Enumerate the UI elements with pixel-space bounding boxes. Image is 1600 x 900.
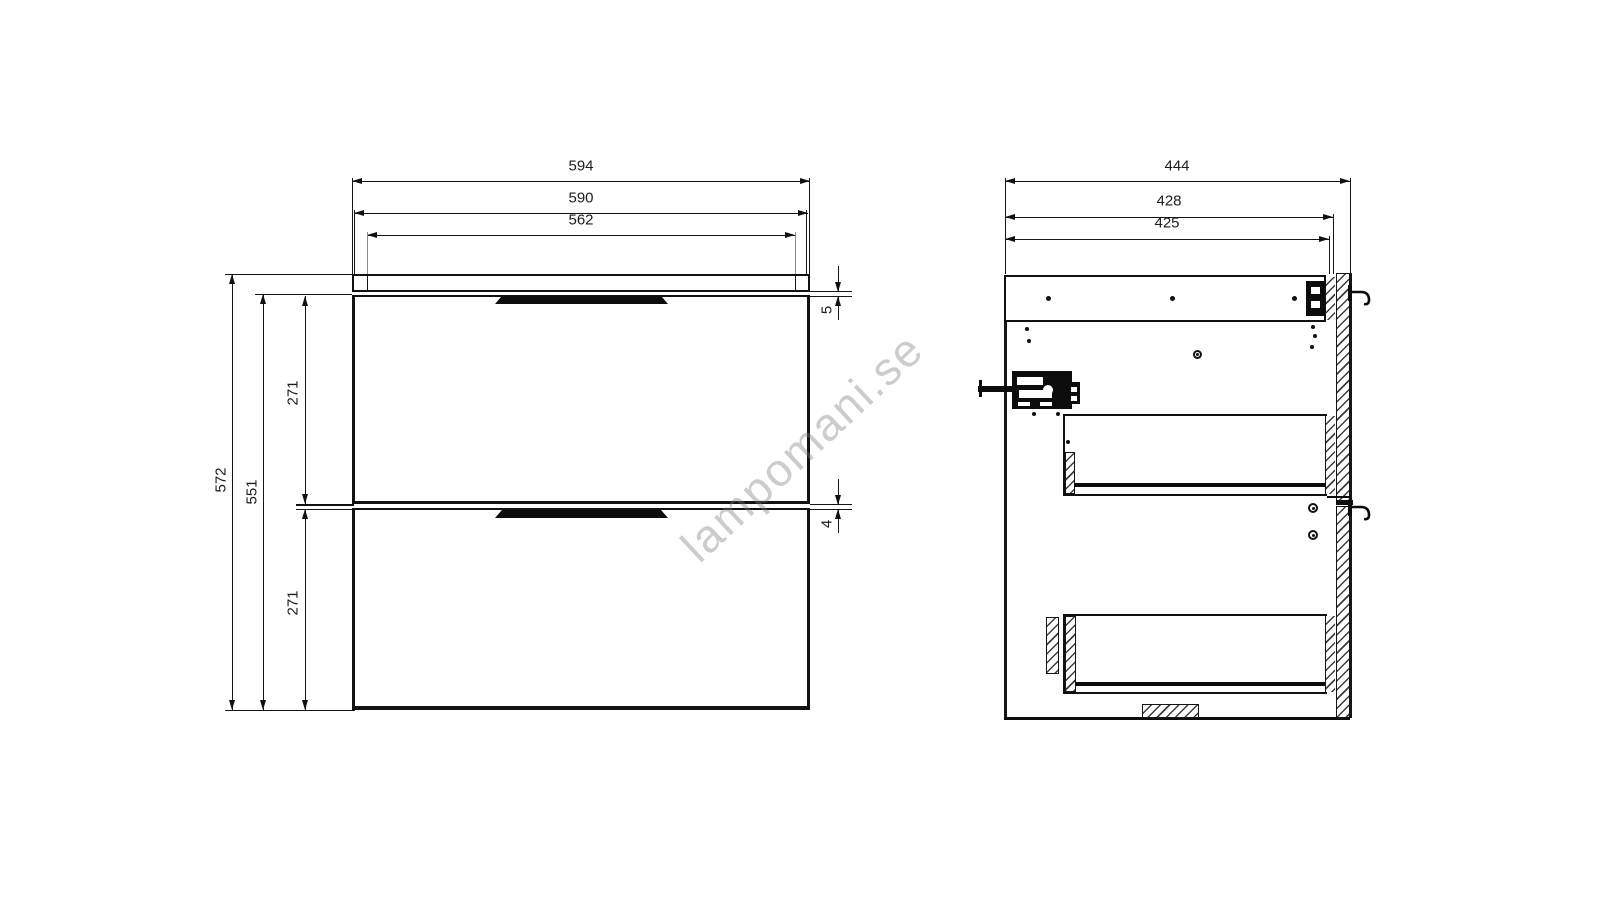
screw-dot [1311,325,1315,329]
screw-center [1312,534,1315,537]
slide-roller [1043,385,1053,395]
screw-dot [1292,296,1297,301]
cabinet-back-panel [1004,275,1007,720]
slide-detail [1040,402,1052,406]
side-view: 444 428 425 [0,0,1600,900]
screw-dot [1310,345,1314,349]
slide-detail [1018,402,1030,406]
bottom-rail-block [1142,704,1199,718]
screw-center [1312,507,1315,510]
front-panel-joint-line [1327,496,1350,498]
bracket-hatch-strip [1326,277,1335,320]
lower-drawer-front-hatch [1326,616,1335,692]
lower-front-panel-section [1336,506,1350,718]
cabinet-front-line [1350,273,1352,718]
screw-dot [1056,412,1060,416]
dim-label-428: 428 [1156,193,1181,210]
top-mounting-rail [1004,275,1326,322]
dim-arrow-right-425 [1319,236,1329,242]
cam-center-dot [1196,353,1199,356]
extension-line [1005,178,1006,274]
screw-dot [1170,296,1175,301]
lower-drawer-front-edge [1065,616,1076,692]
dim-arrow-left-428 [1005,214,1015,220]
technical-drawing-canvas: lampomani.se 594 590 562 [0,0,1600,900]
screw-dot [1032,412,1036,416]
bracket-slot [1311,287,1320,294]
dim-arrow-left-444 [1005,178,1015,184]
dim-label-425: 425 [1154,215,1179,232]
slide-detail [1071,387,1077,392]
lower-handle-profile-icon [1348,498,1376,524]
extension-line [1333,214,1334,274]
dim-label-444: 444 [1164,158,1189,175]
slide-rail-end [979,380,982,397]
upper-drawer-front-edge [1065,452,1075,494]
dim-arrow-left-425 [1005,236,1015,242]
slide-rail-protrusion [978,386,1014,392]
dim-arrow-right-428 [1323,214,1333,220]
extension-line [1350,178,1351,274]
upper-drawer-front-hatch [1326,416,1335,494]
screw-dot [1046,296,1051,301]
dim-line-425 [1005,239,1329,240]
screw-dot [1025,327,1029,331]
extension-line [1329,236,1330,274]
upper-handle-profile-icon [1348,283,1376,309]
slide-detail [1017,377,1043,385]
dim-arrow-right-444 [1340,178,1350,184]
dim-line-444 [1005,181,1350,182]
slide-detail [1071,396,1077,401]
upper-drawer-bottom-panel [1074,483,1325,487]
lower-drawer-bottom-panel [1075,682,1325,686]
bracket-slot [1311,301,1320,308]
lower-drawer-runner-block [1046,617,1059,674]
screw-dot [1313,334,1317,338]
screw-dot [1027,339,1031,343]
screw-dot [1066,440,1070,444]
